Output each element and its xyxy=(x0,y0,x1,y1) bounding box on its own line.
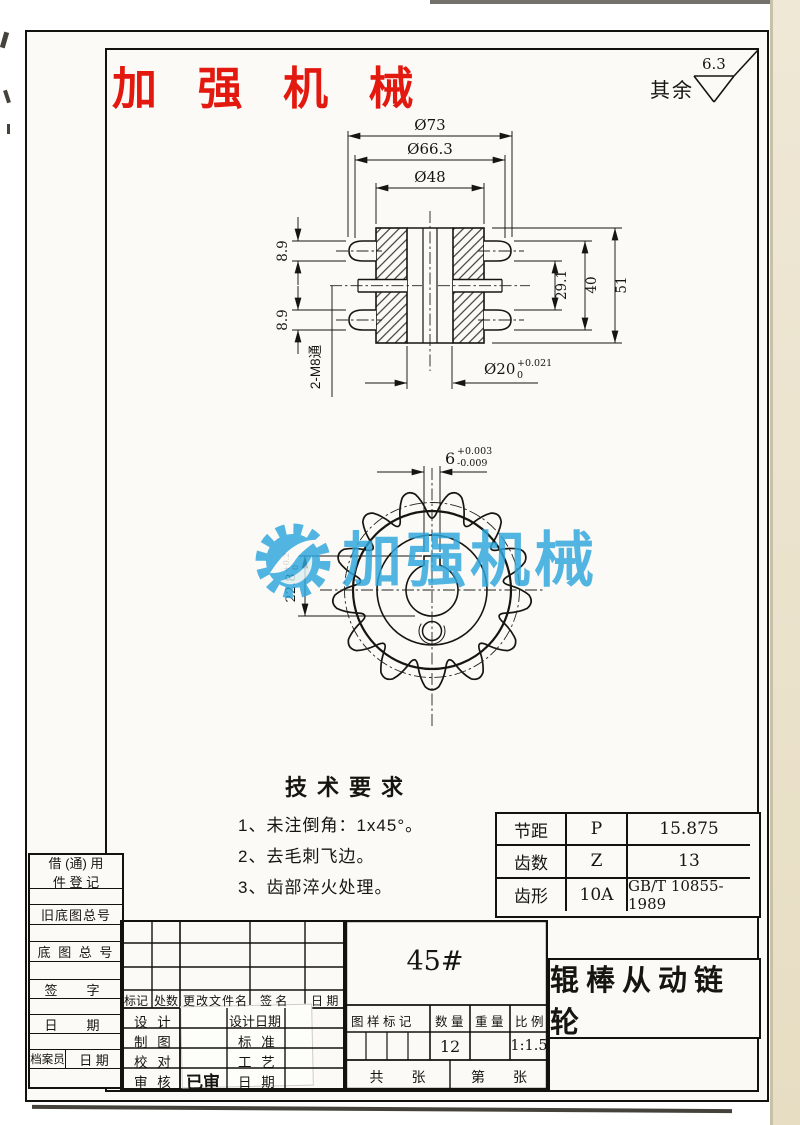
register-archivist-row: 档案员 日 期 xyxy=(30,1050,122,1069)
process-label: 工 艺 xyxy=(238,1051,278,1071)
scan-edge-top xyxy=(430,0,800,4)
register-empty-cell xyxy=(30,1069,122,1087)
paper-edge-right xyxy=(772,0,800,1125)
tech-req-item: 2、去毛刺飞边。 xyxy=(238,841,423,872)
qty-label: 数 量 xyxy=(435,1011,463,1030)
tech-req-item: 3、齿部淬火处理。 xyxy=(238,872,423,903)
front-view: 6 +0.003 -0.009 22.8 +0.2 0 xyxy=(265,430,605,740)
tech-req-list: 1、未注倒角：1x45°。 2、去毛刺飞边。 3、齿部淬火处理。 xyxy=(238,810,423,903)
change-date-header: 日 期 xyxy=(311,992,338,1009)
scale-value: 1:1.5 xyxy=(510,1038,548,1054)
svg-text:0: 0 xyxy=(291,565,300,570)
mark-label: 图 样 标 记 xyxy=(351,1011,411,1030)
register-date: 日 期 xyxy=(30,1015,122,1034)
spec-pitch-symbol: P xyxy=(567,814,628,846)
spec-teeth-symbol: Z xyxy=(567,846,628,878)
sheets-total: 共 张 xyxy=(345,1067,450,1087)
register-old-tracing-no: 旧底图总号 xyxy=(30,905,122,925)
role-designer: 设 计 xyxy=(134,1011,174,1031)
svg-text:+0.003: +0.003 xyxy=(457,446,492,457)
svg-text:+0.021: +0.021 xyxy=(517,358,552,369)
role-auditor: 审 核 xyxy=(134,1071,174,1091)
change-sign-header: 签 名 xyxy=(260,992,287,1009)
drawing-sheet: 加 强 机 械 其余 6.3 xyxy=(0,0,800,1125)
scan-edge-bottom xyxy=(32,1105,732,1113)
svg-text:8.9: 8.9 xyxy=(275,240,291,261)
spec-pitch-label: 节距 xyxy=(497,814,567,846)
spec-teeth-label: 齿数 xyxy=(497,846,567,878)
svg-text:0: 0 xyxy=(517,370,523,381)
change-mark-header: 标记 xyxy=(124,992,148,1009)
svg-text:Ø66.3: Ø66.3 xyxy=(407,140,453,158)
svg-text:2-M8通: 2-M8通 xyxy=(308,344,323,389)
spec-profile-symbol: 10A xyxy=(567,879,628,911)
svg-text:Ø48: Ø48 xyxy=(414,168,445,186)
role-draftsman: 制 图 xyxy=(134,1031,174,1051)
register-table: 借 (通) 用 件 登 记 旧底图总号 底 图 总 号 签 字 日 期 档案员 … xyxy=(28,853,124,1089)
change-count-header: 处数 xyxy=(154,992,178,1009)
audited-note: 已审 xyxy=(186,1068,220,1094)
surface-finish-symbol: 6.3 xyxy=(692,48,766,110)
register-empty-cell xyxy=(30,925,122,942)
register-archivist-date: 日 期 xyxy=(66,1050,122,1069)
register-empty-cell xyxy=(30,999,122,1015)
surface-finish-label: 其余 xyxy=(650,74,694,103)
material-value: 45# xyxy=(345,946,525,977)
title-lower-cell-border xyxy=(548,1035,550,1090)
register-empty-cell xyxy=(30,962,122,980)
sheet-number: 第 张 xyxy=(450,1067,548,1087)
scan-mark-left-2 xyxy=(3,90,11,104)
register-empty-cell xyxy=(30,889,122,905)
svg-text:6: 6 xyxy=(445,449,455,468)
material-block: 45# 图 样 标 记 数 量 重 量 比 例 12 1:1.5 共 张 第 张 xyxy=(345,920,548,1090)
svg-text:8.9: 8.9 xyxy=(275,309,291,330)
tech-req-title: 技术要求 xyxy=(285,770,413,802)
spec-profile-label: 齿形 xyxy=(497,879,567,911)
svg-text:Ø73: Ø73 xyxy=(414,116,445,134)
svg-text:-0.009: -0.009 xyxy=(457,458,487,469)
scan-mark-left-3 xyxy=(7,124,10,134)
spec-table: 节距 P 15.875 齿数 Z 13 齿形 10A GB/T 10855-19… xyxy=(495,812,761,918)
tech-req-item: 1、未注倒角：1x45°。 xyxy=(238,810,423,841)
register-empty-cell xyxy=(30,1034,122,1050)
change-block: 标记 处数 更改文件名 签 名 日 期 设 计 制 图 校 对 审 核 设计日期… xyxy=(120,920,345,1090)
change-file-header: 更改文件名 xyxy=(183,992,248,1009)
svg-text:29.1: 29.1 xyxy=(554,270,570,300)
scan-mark-left-1 xyxy=(0,32,9,49)
svg-text:22.8: 22.8 xyxy=(284,574,299,603)
standard-label: 标 准 xyxy=(238,1031,278,1051)
register-signature: 签 字 xyxy=(30,980,122,999)
spec-profile-standard: GB/T 10855-1989 xyxy=(628,879,750,911)
register-tracing-no: 底 图 总 号 xyxy=(30,942,122,962)
role-checker: 校 对 xyxy=(134,1051,174,1071)
register-archivist: 档案员 xyxy=(30,1050,66,1068)
spec-pitch-value: 15.875 xyxy=(628,814,750,846)
svg-text:51: 51 xyxy=(614,276,630,293)
section-view: Ø73 Ø66.3 Ø48 8.9 8.9 2-M8通 29.1 40 51 Ø… xyxy=(270,105,680,410)
scale-label: 比 例 xyxy=(515,1011,543,1030)
register-borrowed-parts: 借 (通) 用 件 登 记 xyxy=(30,855,122,889)
design-date-label: 设计日期 xyxy=(229,1011,281,1030)
part-name-box: 辊棒从动链轮 xyxy=(548,958,761,1039)
weight-label: 重 量 xyxy=(475,1011,503,1030)
svg-text:+0.2: +0.2 xyxy=(282,553,291,572)
svg-text:40: 40 xyxy=(584,276,600,293)
finish-value: 6.3 xyxy=(702,55,726,73)
date-label: 日 期 xyxy=(238,1071,278,1091)
paper-edge-right-shadow xyxy=(770,0,773,1125)
qty-value: 12 xyxy=(430,1037,470,1056)
svg-text:Ø20: Ø20 xyxy=(484,360,515,378)
spec-teeth-value: 13 xyxy=(628,846,750,878)
